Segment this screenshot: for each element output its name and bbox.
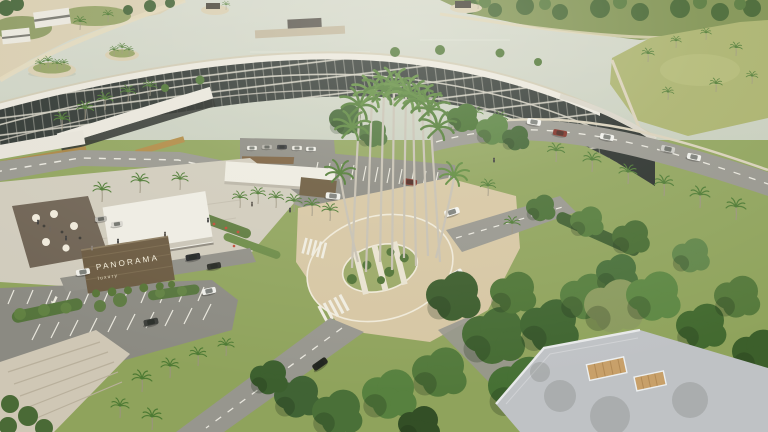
scene-canvas: PANORAMA luxury xyxy=(0,0,768,432)
aerial-render-image: PANORAMA luxury xyxy=(0,0,768,432)
sun-glare-overlay xyxy=(0,0,768,432)
